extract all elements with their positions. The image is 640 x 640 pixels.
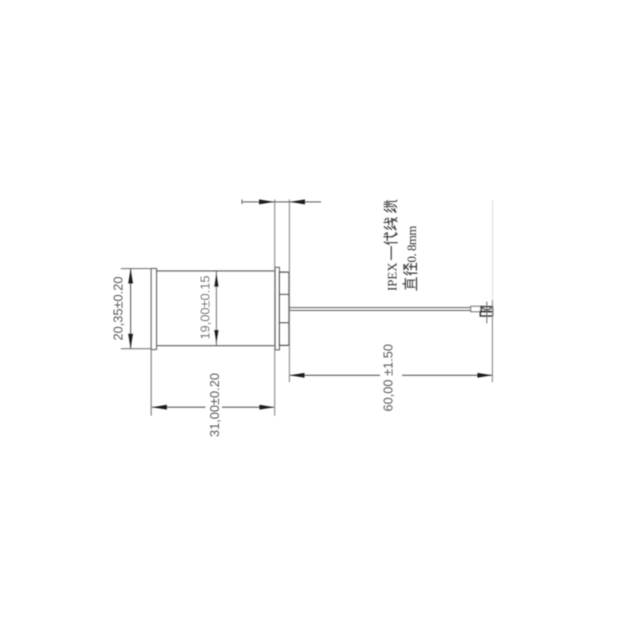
svg-text:0. 8mm: 0. 8mm — [405, 226, 419, 263]
svg-text:60,00 ±1.50: 60,00 ±1.50 — [381, 344, 396, 412]
svg-text:31,00±0.20: 31,00±0.20 — [207, 373, 222, 437]
svg-text:20,35±0.20: 20,35±0.20 — [110, 277, 125, 341]
svg-text:19,00±0.15: 19,00±0.15 — [198, 276, 213, 340]
svg-text:IPEX: IPEX — [386, 262, 400, 291]
